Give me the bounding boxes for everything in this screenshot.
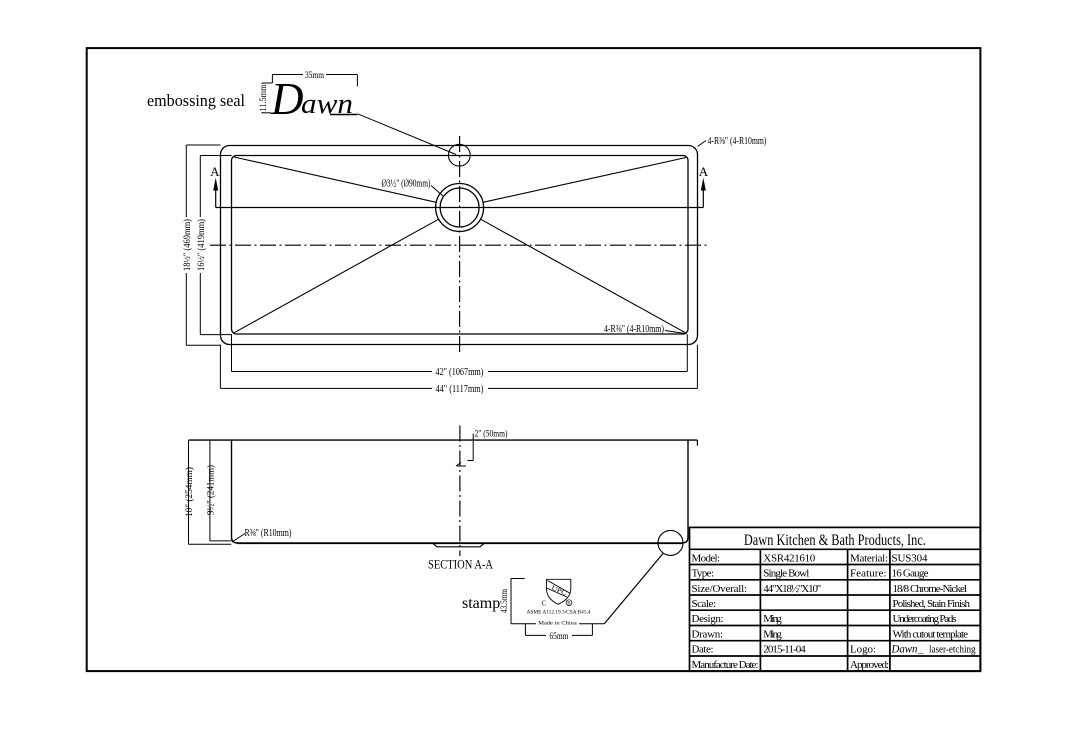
svg-text:_: _ <box>917 644 924 656</box>
svg-text:XSR421610: XSR421610 <box>763 552 816 564</box>
svg-text:4-R⅜" (4-R10mm): 4-R⅜" (4-R10mm) <box>708 136 767 147</box>
svg-text:Made in China: Made in China <box>538 620 577 626</box>
svg-text:9½" (241mm): 9½" (241mm) <box>206 465 217 515</box>
svg-text:18½" (469mm): 18½" (469mm) <box>182 219 193 271</box>
svg-text:Logo:: Logo: <box>850 644 876 656</box>
svg-text:SUS304: SUS304 <box>892 552 929 564</box>
svg-text:16 Gauge: 16 Gauge <box>892 568 929 580</box>
svg-text:awn: awn <box>301 89 353 120</box>
svg-text:Material:: Material: <box>850 552 888 564</box>
svg-text:A: A <box>210 164 220 179</box>
svg-text:Dawn: Dawn <box>891 642 918 656</box>
svg-text:R⅜" (R10mm): R⅜" (R10mm) <box>245 528 292 539</box>
svg-text:42" (1067mm): 42" (1067mm) <box>436 367 484 378</box>
svg-text:Model:: Model: <box>692 552 721 564</box>
svg-text:ASME A112.19.3/CSA B45.4: ASME A112.19.3/CSA B45.4 <box>527 609 591 615</box>
svg-text:Dawn Kitchen & Bath Products,: Dawn Kitchen & Bath Products, Inc. <box>744 532 926 549</box>
svg-text:SECTION A-A: SECTION A-A <box>428 557 493 572</box>
svg-text:Undercoating Pads: Undercoating Pads <box>893 613 957 625</box>
svg-text:18/8 Chrome-Nickel: 18/8 Chrome-Nickel <box>893 583 968 595</box>
svg-text:With cutout template: With cutout template <box>893 629 969 641</box>
svg-text:Approved:: Approved: <box>850 659 889 671</box>
svg-text:C: C <box>542 600 547 608</box>
svg-text:2" (50mm): 2" (50mm) <box>475 429 508 440</box>
svg-text:44" (1117mm): 44" (1117mm) <box>436 384 484 395</box>
svg-text:2015-11-04: 2015-11-04 <box>763 644 806 656</box>
svg-text:Design:: Design: <box>692 613 724 625</box>
svg-text:laser-etching: laser-etching <box>929 644 976 656</box>
svg-text:Ming: Ming <box>763 629 782 641</box>
svg-text:10" (254mm): 10" (254mm) <box>184 467 195 517</box>
svg-text:Type:: Type: <box>692 568 715 580</box>
svg-text:65mm: 65mm <box>549 632 568 642</box>
svg-text:Date:: Date: <box>692 644 714 656</box>
svg-text:43.5mm: 43.5mm <box>499 589 509 613</box>
svg-text:Scale:: Scale: <box>692 598 717 610</box>
svg-text:Size/Overall:: Size/Overall: <box>692 583 748 595</box>
svg-text:44"X18½"X10": 44"X18½"X10" <box>763 583 821 595</box>
svg-text:Ming: Ming <box>763 613 782 625</box>
svg-text:Polished, Stain Finish: Polished, Stain Finish <box>893 598 971 610</box>
svg-text:4-R⅜" (4-R10mm): 4-R⅜" (4-R10mm) <box>604 324 664 335</box>
svg-text:35mm: 35mm <box>305 71 324 81</box>
svg-text:16½" (419mm): 16½" (419mm) <box>196 219 207 271</box>
svg-text:11.5mm: 11.5mm <box>259 84 269 112</box>
svg-text:stamp: stamp <box>462 595 500 612</box>
svg-text:Drawn:: Drawn: <box>692 629 724 641</box>
svg-text:embossing seal: embossing seal <box>147 91 245 110</box>
svg-text:Feature:: Feature: <box>850 568 887 580</box>
svg-text:Single Bowl: Single Bowl <box>763 568 809 580</box>
svg-text:A: A <box>699 164 709 179</box>
svg-text:D: D <box>270 74 304 124</box>
svg-text:Ø3½" (Ø90mm): Ø3½" (Ø90mm) <box>382 179 431 190</box>
svg-text:Manufacture Date:: Manufacture Date: <box>692 659 759 671</box>
